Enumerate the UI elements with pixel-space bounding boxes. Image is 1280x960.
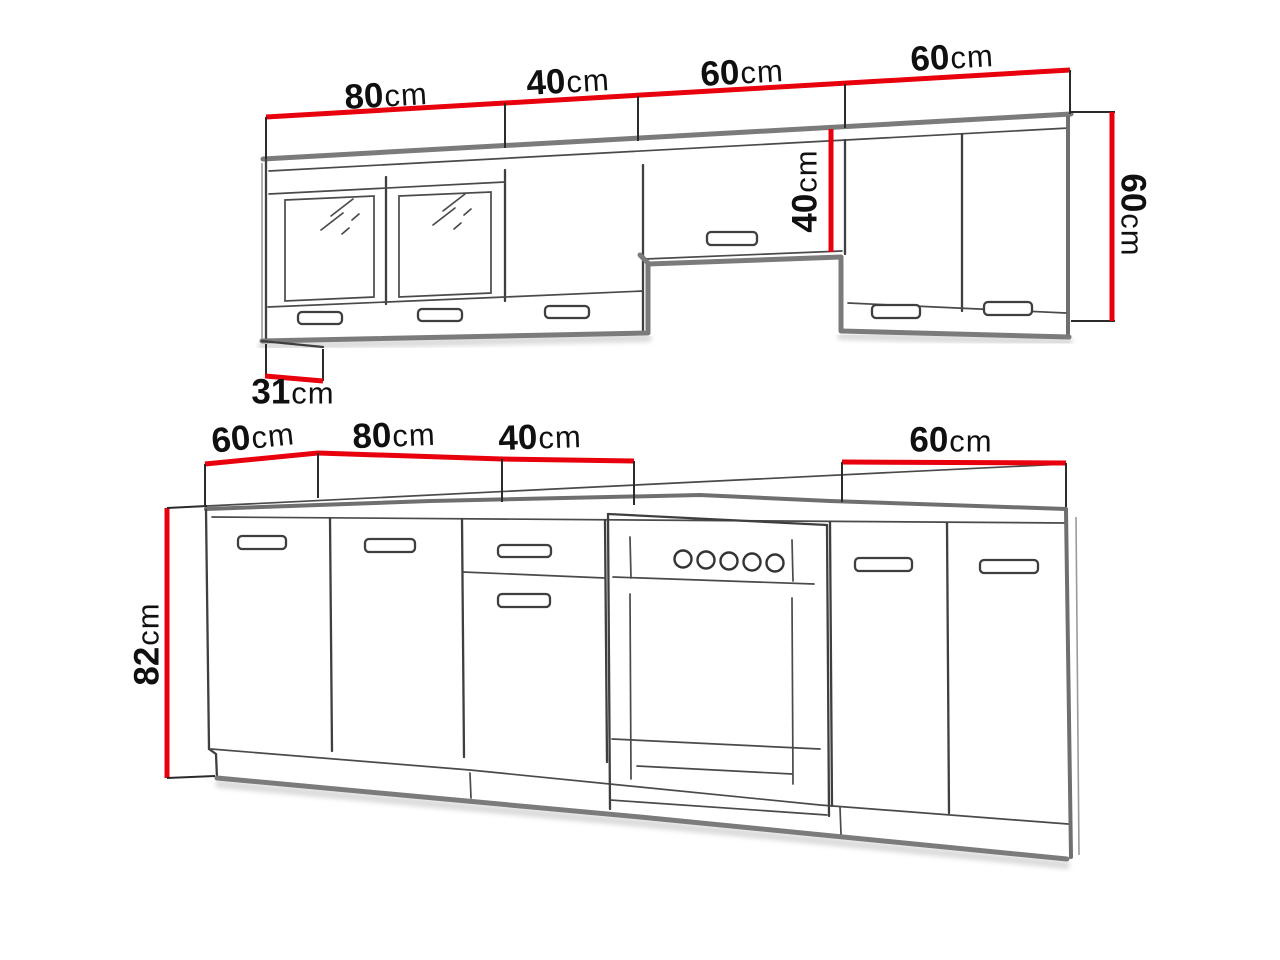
dim-label-base-width-right-60: 60cm (909, 423, 992, 458)
dim-unit: cm (789, 149, 824, 192)
base-floor-shadow (219, 784, 1066, 865)
base-divider-80-40 (462, 519, 464, 757)
dim-value: 60 (699, 53, 740, 94)
plinth-joint-1 (470, 773, 471, 798)
oven-knob-3 (721, 553, 738, 570)
hood-cab-handle (707, 232, 757, 245)
glass-pane-right (399, 192, 491, 297)
oven-door-right-line (792, 598, 793, 784)
dim-label-base-width-40: 40cm (498, 418, 582, 456)
dim-value: 80 (352, 416, 393, 457)
drawer-bottom-line (463, 572, 605, 578)
glass-pane-left (285, 196, 374, 301)
base-drawer-handle-40 (498, 545, 551, 557)
glass-reflection-left (321, 199, 359, 234)
dim-value: 31 (251, 373, 290, 412)
dim-label-wall-width-60b: 60cm (909, 37, 994, 77)
oven-knob-5 (767, 555, 784, 572)
base-doors-bottom-line (211, 749, 1068, 824)
diagram-line-art (0, 0, 1280, 960)
dim-value: 82 (128, 647, 167, 686)
dim-value: 60 (909, 421, 948, 460)
wall-handle-1 (298, 312, 342, 324)
oven-door-bottom-line (612, 739, 820, 749)
oven-panel-right-line (792, 540, 793, 581)
base-handle-right-1 (855, 558, 912, 571)
base-left-plinth-step (209, 749, 217, 778)
wall-units-drawing (262, 114, 1071, 347)
base-handle-right-2 (980, 560, 1038, 573)
oven-knob-4 (744, 554, 761, 571)
base-handle-60 (238, 536, 286, 549)
dim-line-base-width-right (842, 462, 1066, 463)
dim-value: 60 (210, 418, 253, 461)
dim-unit: cm (291, 376, 334, 411)
base-units-drawing (206, 464, 1079, 865)
oven-left-edge (608, 514, 610, 809)
wall-handle-5 (984, 302, 1032, 315)
counter-front-edge (206, 495, 1066, 509)
dim-label-wall-depth-31: 31cm (251, 375, 334, 410)
plinth-bottom-edge (217, 778, 1067, 859)
dim-unit: cm (949, 424, 992, 459)
counter-back-edge (207, 464, 1064, 506)
base-doors-top-line (212, 517, 1065, 523)
dim-unit: cm (949, 38, 994, 76)
dim-label-base-width-60: 60cm (210, 415, 296, 459)
base-divider-oven-right (830, 522, 832, 806)
dim-label-wall-width-60a: 60cm (699, 52, 784, 92)
wall-handle-2 (418, 309, 462, 321)
dim-value: 60 (1114, 173, 1153, 212)
dim-label-base-width-80: 80cm (352, 416, 437, 455)
dim-unit: cm (1115, 213, 1150, 256)
dim-tick (167, 506, 207, 508)
oven-door-left-line (630, 594, 631, 779)
base-right-cab-door-divider (947, 523, 949, 813)
dim-value: 80 (343, 76, 384, 117)
dim-tick (167, 776, 215, 778)
dim-unit: cm (739, 53, 784, 91)
oven-panel-bottom-line (613, 577, 814, 584)
base-handle-80 (365, 539, 415, 552)
hood-bottom-slab (648, 257, 841, 330)
dim-value: 40 (498, 418, 538, 458)
wall-top-edge (263, 114, 1071, 159)
kitchen-dimension-diagram: 80cm 40cm 60cm 60cm 40cm 60cm 31cm 60cm … (0, 0, 1280, 960)
plinth-joint-2 (840, 807, 841, 834)
oven (608, 514, 829, 816)
wall-handle-3 (545, 306, 589, 318)
base-right-edge (1066, 510, 1071, 857)
base-divider-40-oven (605, 520, 607, 762)
dim-label-hood-height-40: 40cm (788, 149, 823, 232)
dim-label-base-height-82: 82cm (130, 602, 165, 685)
wall-handle-4 (872, 305, 920, 318)
base-divider-60-80 (330, 518, 332, 751)
dim-unit: cm (565, 62, 610, 100)
dim-unit: cm (538, 419, 583, 455)
dim-value: 40 (786, 194, 825, 233)
oven-knob-2 (698, 552, 715, 569)
dim-unit: cm (131, 602, 166, 645)
dim-unit: cm (392, 417, 437, 454)
base-right-edge-outer (1076, 517, 1079, 855)
wall-bottom-left-and-recess (262, 264, 648, 341)
dim-label-wall-width-80: 80cm (343, 75, 428, 115)
base-door-handle-40 (498, 594, 550, 607)
dim-value: 40 (525, 62, 566, 103)
glass-reflection-right (433, 194, 471, 229)
dim-unit: cm (383, 76, 428, 114)
dim-label-wall-height-60: 60cm (1116, 173, 1151, 256)
oven-panel-left-line (630, 537, 631, 578)
oven-drawer-line (637, 766, 792, 774)
dim-value: 60 (909, 38, 950, 79)
oven-right-edge (827, 525, 829, 816)
base-left-edge (206, 510, 209, 749)
dim-line-base-widths-left (205, 453, 634, 464)
oven-knob-1 (675, 551, 692, 568)
dim-label-wall-width-40: 40cm (525, 61, 610, 101)
dim-unit: cm (250, 416, 297, 455)
